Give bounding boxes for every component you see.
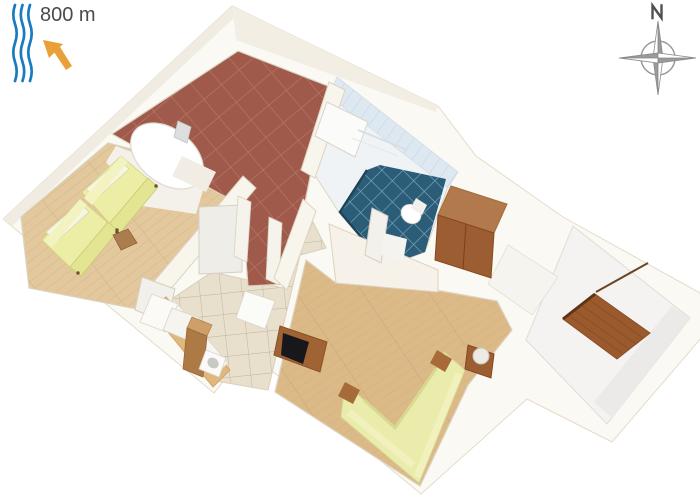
svg-text:800 m: 800 m (40, 4, 96, 26)
